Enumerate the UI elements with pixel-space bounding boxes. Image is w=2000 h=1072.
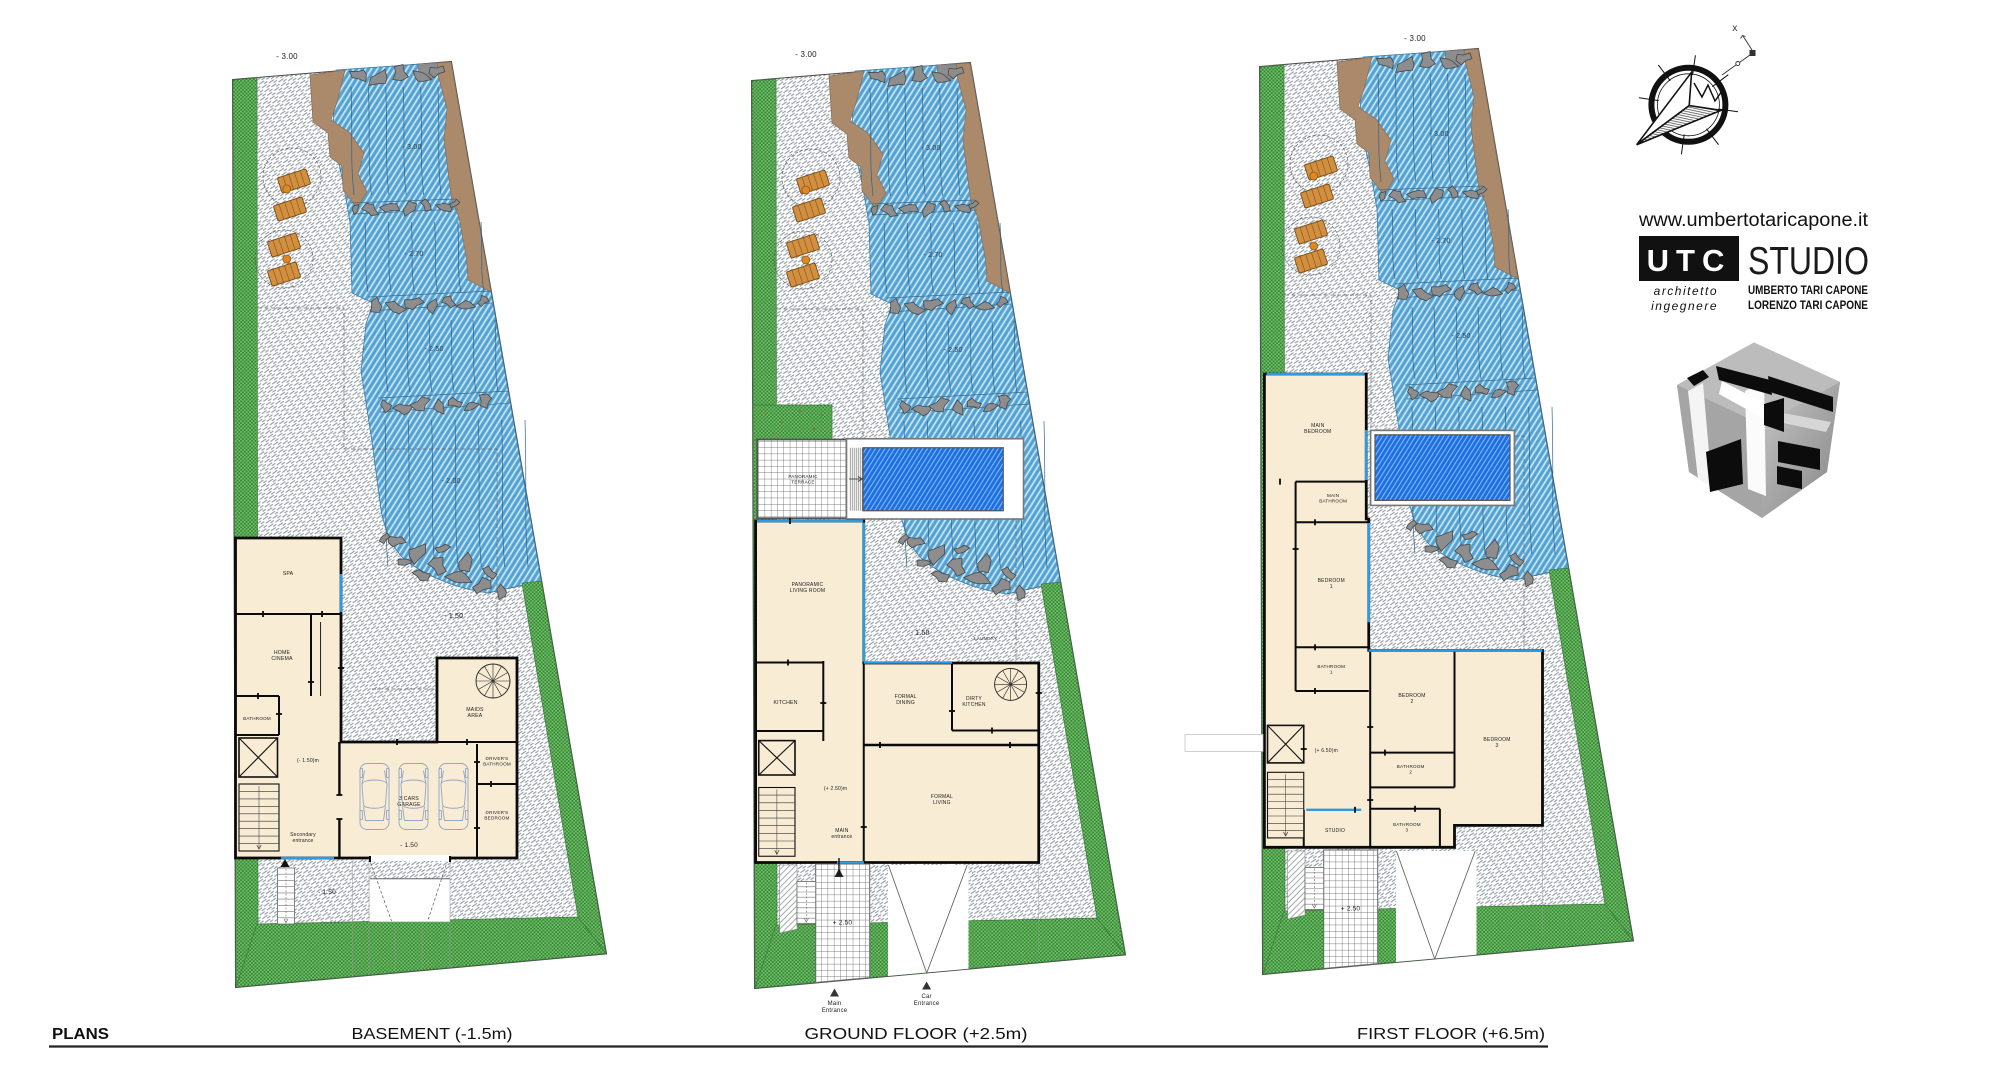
svg-text:STUDIO: STUDIO	[1748, 240, 1869, 283]
svg-text:DRIVER'SBATHROOM: DRIVER'SBATHROOM	[483, 756, 511, 766]
svg-text:MAIDSAREA: MAIDSAREA	[466, 707, 484, 719]
svg-text:- 1.50: - 1.50	[400, 842, 418, 849]
svg-text:- 2.70: - 2.70	[404, 251, 423, 258]
svg-text:STUDIO: STUDIO	[1325, 828, 1345, 834]
svg-text:- 3.00: - 3.00	[921, 145, 940, 152]
svg-text:DRIVER'SBEDROOM: DRIVER'SBEDROOM	[484, 810, 509, 820]
svg-text:- 1.50: - 1.50	[910, 630, 929, 637]
svg-text:- 3.00: - 3.00	[795, 50, 817, 59]
svg-text:- 1.50: - 1.50	[444, 613, 463, 620]
svg-text:MainEntrance: MainEntrance	[822, 1001, 848, 1014]
svg-text:- 3.00: - 3.00	[276, 52, 298, 61]
svg-text:HOMECINEMA: HOMECINEMA	[271, 650, 293, 662]
svg-text:3 CARSGARAGE: 3 CARSGARAGE	[397, 796, 421, 808]
svg-text:FIRST FLOOR (+6.5m): FIRST FLOOR (+6.5m)	[1357, 1026, 1545, 1043]
svg-text:+ 2.50: + 2.50	[1341, 906, 1361, 913]
svg-text:BASEMENT (-1.5m): BASEMENT (-1.5m)	[352, 1026, 513, 1043]
svg-text:UTC: UTC	[1647, 243, 1732, 278]
svg-text:- 2.50: - 2.50	[943, 347, 962, 354]
svg-text:- 3.00: - 3.00	[1404, 34, 1426, 43]
svg-text:x: x	[1732, 23, 1737, 34]
svg-text:- 1.50: - 1.50	[318, 889, 336, 896]
svg-text:FORMALDINING: FORMALDINING	[895, 694, 917, 706]
svg-text:Secondaryentrance: Secondaryentrance	[290, 832, 316, 844]
svg-text:- 3.00: - 3.00	[402, 144, 421, 151]
svg-text:GROUND FLOOR (+2.5m): GROUND FLOOR (+2.5m)	[805, 1026, 1028, 1043]
svg-text:PANORAMICTERRACE: PANORAMICTERRACE	[788, 474, 818, 484]
svg-text:(+ 2.50)m: (+ 2.50)m	[824, 786, 847, 792]
svg-text:UMBERTO TARI CAPONE: UMBERTO TARI CAPONE	[1748, 285, 1868, 297]
svg-text:- 3.00: - 3.00	[1429, 131, 1448, 138]
svg-text:ingegnere: ingegnere	[1651, 299, 1718, 313]
svg-text:PLANS: PLANS	[52, 1026, 109, 1043]
svg-text:- 2.50: - 2.50	[1451, 333, 1470, 340]
svg-text:- 2.00: - 2.00	[441, 478, 460, 485]
svg-text:LORENZO TARI CAPONE: LORENZO TARI CAPONE	[1748, 300, 1868, 312]
svg-text:- 2.50: - 2.50	[424, 346, 443, 353]
svg-text:- 2.70: - 2.70	[1431, 238, 1450, 245]
svg-text:PANORAMICLIVING ROOM: PANORAMICLIVING ROOM	[790, 582, 826, 594]
svg-text:BATHROOM: BATHROOM	[243, 716, 271, 721]
svg-text:CarEntrance: CarEntrance	[914, 994, 940, 1007]
svg-text:SPA: SPA	[283, 571, 294, 577]
svg-text:- LAUNDRY -: - LAUNDRY -	[971, 636, 1001, 641]
svg-text:(- 1.50)m: (- 1.50)m	[297, 758, 319, 764]
svg-text:www.umbertotaricapone.it: www.umbertotaricapone.it	[1638, 210, 1869, 231]
svg-text:+ 2.50: + 2.50	[833, 920, 853, 927]
svg-text:- 2.70: - 2.70	[923, 252, 942, 259]
svg-text:architetto: architetto	[1654, 284, 1718, 298]
svg-text:FORMALLIVING: FORMALLIVING	[931, 794, 953, 806]
svg-text:(+ 6.50)m: (+ 6.50)m	[1315, 748, 1338, 754]
svg-text:KITCHEN: KITCHEN	[774, 700, 798, 706]
